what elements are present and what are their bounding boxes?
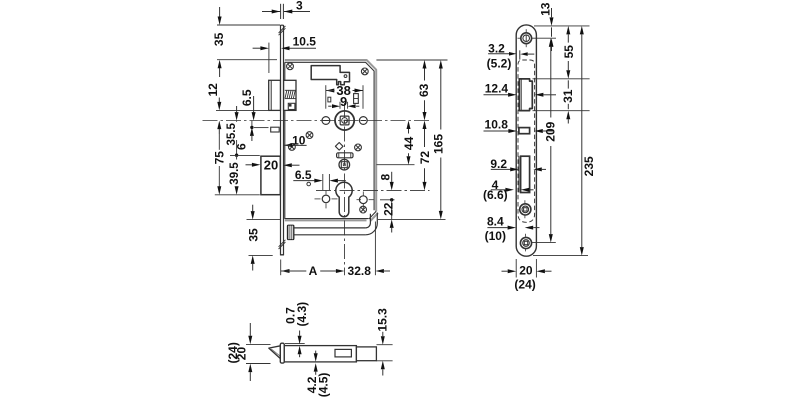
svg-text:(10): (10) [485,229,506,243]
svg-text:55: 55 [562,45,576,59]
svg-text:6.5: 6.5 [240,89,254,106]
svg-text:8.4: 8.4 [487,215,504,229]
svg-text:20: 20 [235,347,249,361]
svg-text:44: 44 [402,136,416,150]
svg-text:(24): (24) [514,277,535,291]
svg-text:72: 72 [418,151,432,165]
svg-text:3.2: 3.2 [488,41,505,55]
svg-text:35: 35 [212,32,226,46]
svg-text:12: 12 [206,83,220,97]
svg-text:(5.2): (5.2) [487,56,512,70]
svg-text:35: 35 [247,228,261,242]
svg-text:22: 22 [381,202,395,216]
svg-text:20: 20 [519,263,533,277]
svg-text:13: 13 [539,2,553,16]
svg-text:9: 9 [340,94,347,109]
svg-text:6.5: 6.5 [295,168,312,182]
svg-text:8: 8 [379,174,393,181]
svg-text:(6.6): (6.6) [483,188,508,202]
svg-text:39.5: 39.5 [229,162,241,185]
svg-text:209: 209 [544,121,558,141]
svg-text:31: 31 [561,89,575,103]
svg-text:165: 165 [432,134,446,154]
svg-text:10.8: 10.8 [485,118,509,132]
svg-text:10.5: 10.5 [293,34,317,48]
svg-text:(4.5): (4.5) [316,373,330,398]
svg-text:A: A [309,264,318,278]
svg-text:3: 3 [296,0,303,13]
svg-text:32.8: 32.8 [348,264,372,278]
svg-text:75: 75 [213,151,227,165]
svg-text:63: 63 [417,83,431,97]
svg-text:12.4: 12.4 [485,82,509,96]
svg-text:15.3: 15.3 [376,308,390,332]
svg-text:6: 6 [235,143,249,150]
svg-text:235: 235 [582,156,596,176]
svg-text:(4.3): (4.3) [295,302,309,327]
svg-text:20: 20 [264,158,278,173]
